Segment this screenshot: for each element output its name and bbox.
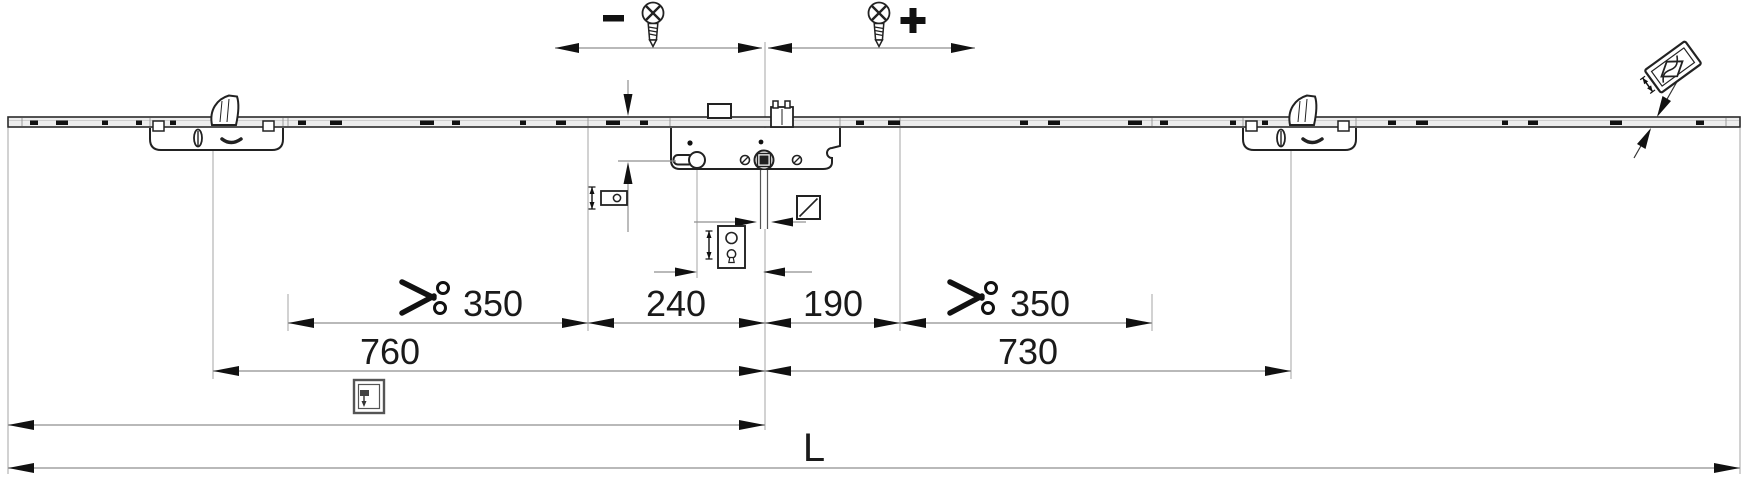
dimension-chain-row: 350 240 190 350 [288,282,1152,328]
screw-icon [643,3,664,47]
follower-cover-bump [708,104,731,118]
hook-blade [211,96,238,126]
dim-350-right-label: 350 [1010,283,1070,324]
dim-total-length-label: L [803,426,825,470]
scissors-icon [950,282,997,314]
keeper-bracket [771,101,793,127]
spindle-square-dimension [694,196,820,227]
diagram-canvas: − + [0,0,1745,480]
dim-730-label: 730 [998,331,1058,372]
span-dimension-row: 760 730 [213,331,1291,376]
hook-blade [1289,96,1316,126]
hub-to-cylinder-gauge-icon [706,226,746,268]
handle-height-row [8,380,765,430]
reference-lines [8,42,1740,474]
backset-gauge-icon [589,187,628,209]
spindle-follower [755,151,774,170]
lock-dimension-drawing: − + [0,0,1745,480]
faceplate-section-indicator [1634,41,1701,158]
window-handle-height-icon [354,380,384,413]
dim-760-label: 760 [360,331,420,372]
dim-190-label: 190 [803,283,863,324]
dim-350-left-label: 350 [463,283,523,324]
backset-dimension [589,80,677,232]
dim-240-label: 240 [646,283,706,324]
faceplate-section-icon [1637,41,1701,98]
scissors-icon [402,282,449,314]
screw-icon [869,3,890,47]
hub-to-cylinder-dimension [654,226,812,277]
spindle-square-icon [797,196,820,219]
total-length-row: L [8,426,1740,473]
